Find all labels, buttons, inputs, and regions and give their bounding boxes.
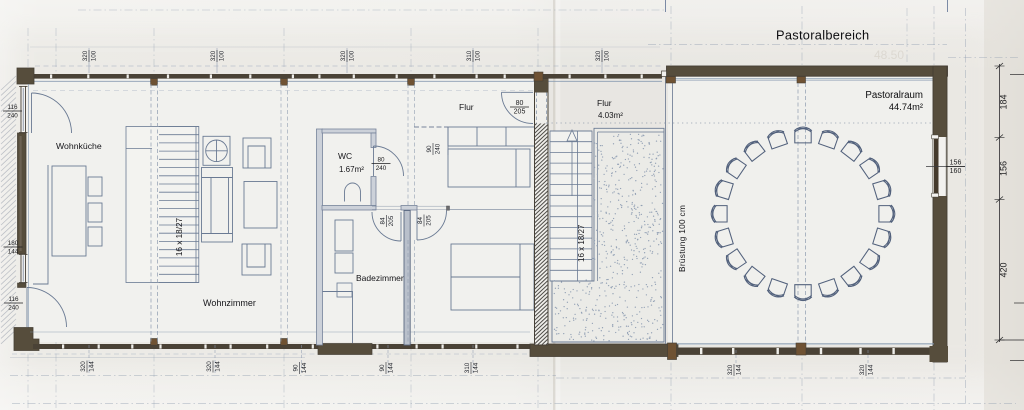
svg-text:320: 320 [859,364,866,375]
svg-text:240: 240 [8,305,19,312]
svg-text:320: 320 [595,50,602,61]
svg-text:48.50: 48.50 [874,48,904,62]
svg-text:16 x 18/27: 16 x 18/27 [577,224,586,262]
svg-text:205: 205 [514,109,526,116]
svg-text:Badezimmer: Badezimmer [356,273,404,283]
svg-text:84: 84 [379,217,386,225]
svg-text:16 x 18/27: 16 x 18/27 [175,217,184,256]
svg-text:WC: WC [338,151,352,161]
svg-text:205: 205 [388,215,395,226]
svg-text:Wohnküche: Wohnküche [56,141,102,151]
svg-text:320: 320 [210,50,217,61]
svg-text:80: 80 [377,156,385,163]
svg-text:Brüstung 100 cm: Brüstung 100 cm [677,205,687,272]
svg-text:84: 84 [417,217,424,225]
svg-text:116: 116 [7,104,18,111]
svg-text:100: 100 [604,50,611,61]
svg-text:144: 144 [473,362,480,373]
svg-text:205: 205 [426,215,433,226]
svg-text:160: 160 [950,168,962,175]
svg-text:Flur: Flur [597,98,612,108]
svg-text:Pastoralbereich: Pastoralbereich [776,28,869,43]
svg-text:100: 100 [91,50,98,61]
svg-text:144: 144 [89,361,96,372]
svg-text:144: 144 [215,361,222,372]
svg-text:184: 184 [999,94,1009,109]
svg-text:90: 90 [379,364,386,372]
svg-text:320: 320 [727,364,734,375]
svg-text:100: 100 [219,50,226,61]
svg-text:320: 320 [80,361,87,372]
svg-text:144: 144 [8,249,19,256]
svg-text:Wohnzimmer: Wohnzimmer [203,298,256,308]
svg-text:90: 90 [292,364,299,372]
svg-text:310: 310 [466,50,473,61]
svg-text:240: 240 [435,143,442,154]
svg-text:144: 144 [301,362,308,373]
svg-text:Flur: Flur [459,102,474,112]
svg-text:180: 180 [8,240,19,247]
svg-text:44.74m²: 44.74m² [889,102,923,112]
svg-text:144: 144 [388,362,395,373]
svg-text:90: 90 [426,145,433,153]
svg-text:Pastoralraum: Pastoralraum [865,90,923,101]
svg-text:320: 320 [206,361,213,372]
svg-text:100: 100 [475,50,482,61]
svg-text:4.03m²: 4.03m² [598,111,623,120]
svg-text:420: 420 [999,262,1009,277]
svg-text:144: 144 [868,364,875,375]
svg-text:116: 116 [8,296,19,303]
svg-text:156: 156 [999,161,1009,176]
svg-text:100: 100 [349,50,356,61]
svg-text:144: 144 [736,364,743,375]
svg-text:310: 310 [464,362,471,373]
svg-text:1.67m²: 1.67m² [339,165,364,174]
svg-text:80: 80 [516,100,524,107]
svg-text:240: 240 [7,113,18,120]
svg-text:240: 240 [376,165,387,172]
svg-text:320: 320 [82,50,89,61]
svg-text:156: 156 [950,159,962,166]
svg-text:320: 320 [340,50,347,61]
